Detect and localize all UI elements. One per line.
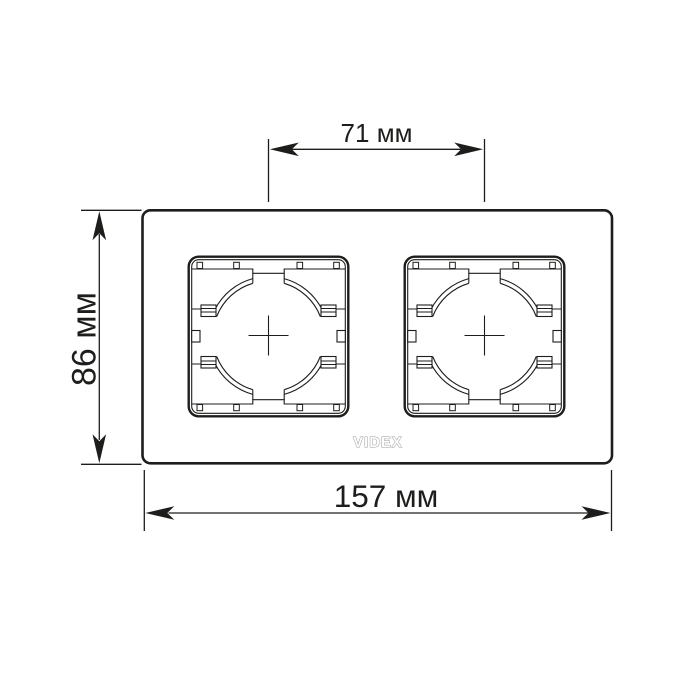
dimension-frame-width: 157 мм: [144, 470, 611, 531]
socket-opening-right: [405, 257, 565, 417]
dimension-frame-height: 86 мм: [66, 210, 142, 464]
dimension-label-spacing: 71 мм: [341, 118, 413, 148]
technical-drawing-canvas: 71 мм 86 мм 157 мм VIDEX: [0, 0, 700, 700]
socket-opening-left: [189, 257, 349, 417]
dimension-socket-spacing: 71 мм: [269, 118, 485, 202]
brand-logo: VIDEX: [353, 435, 403, 451]
dimension-label-height: 86 мм: [66, 292, 104, 386]
dimension-label-width: 157 мм: [334, 478, 439, 514]
